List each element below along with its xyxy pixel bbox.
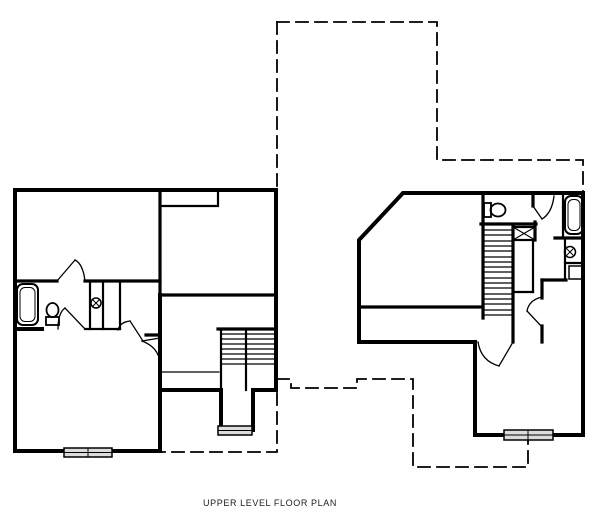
floor-plan-canvas: UPPER LEVEL FLOOR PLAN [0, 0, 600, 528]
attic-access-x-box [513, 227, 535, 240]
plan-linework [15, 22, 583, 467]
interior-walls [15, 190, 583, 342]
plan-title-label: UPPER LEVEL FLOOR PLAN [203, 498, 337, 508]
floor-plan-page: UPPER LEVEL FLOOR PLAN [0, 0, 600, 528]
lower-level-dashed-outline [162, 22, 583, 467]
exterior-walls [15, 190, 583, 451]
stair-treads [162, 230, 513, 372]
